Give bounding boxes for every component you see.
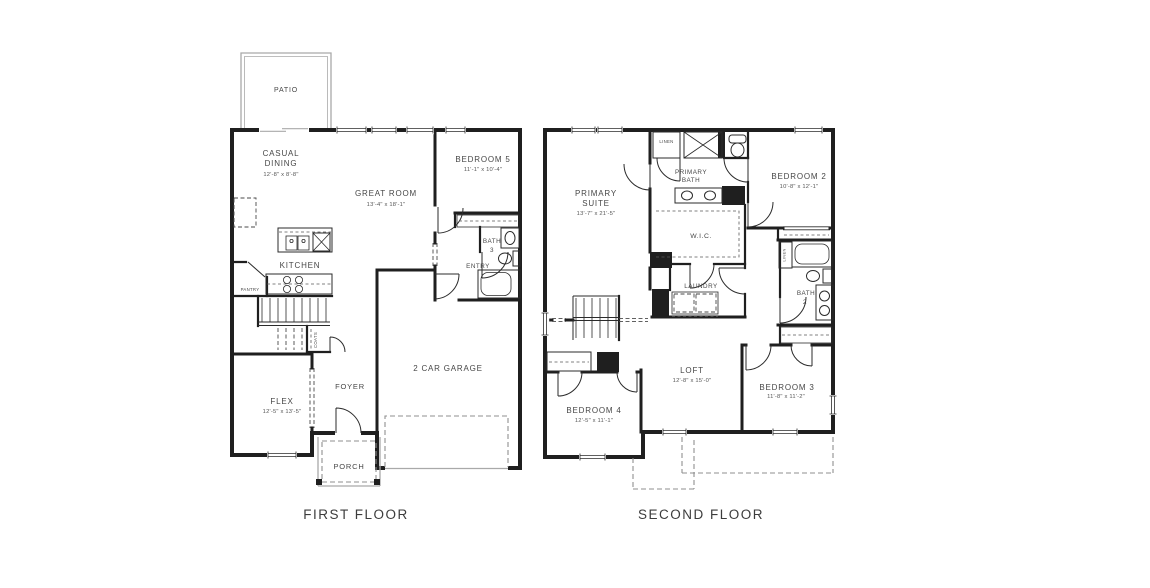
bath3-label-2: 3: [490, 247, 494, 254]
bath2-fixtures: [779, 241, 833, 320]
garage-label: 2 CAR GARAGE: [413, 364, 483, 373]
coats-closet-label: COATS: [313, 332, 318, 348]
bedroom5-dims: 11'-1" x 10'-4": [464, 167, 502, 173]
bath2-label-2: 2: [803, 299, 807, 306]
floor-plan-page: PATIO CASUAL DINING 12'-8" x 8'-8" GREAT…: [0, 0, 1150, 588]
floor-plan-canvas: PATIO CASUAL DINING 12'-8" x 8'-8" GREAT…: [0, 0, 1150, 588]
toilet-icon: [729, 135, 746, 143]
foyer-label: FOYER: [335, 382, 365, 391]
garage-apron: [385, 416, 508, 467]
linen2-label: LINEN: [782, 248, 787, 261]
entry-label: ENTRY: [466, 263, 490, 270]
primary-suite-label-1: PRIMARY: [575, 189, 617, 198]
flex-dims: 12'-5" x 13'-5": [263, 409, 302, 415]
porch-post: [374, 479, 380, 485]
primary-bath-label-1: PRIMARY: [675, 169, 707, 176]
double-vanity: [675, 188, 722, 203]
bath2-label-1: BATH: [797, 290, 815, 297]
bedroom5-label: BEDROOM 5: [455, 155, 510, 164]
laundry-appliances: [672, 292, 718, 317]
loft-label: LOFT: [680, 366, 704, 375]
porch-post: [316, 479, 322, 485]
casual-dining-label-1: CASUAL: [263, 149, 300, 158]
great-room-label: GREAT ROOM: [355, 189, 417, 198]
bath3-label-1: BATH: [483, 238, 501, 245]
bedroom5-closet: [457, 215, 519, 227]
pantry-label: PANTRY: [241, 287, 260, 292]
second-floor-closets: [547, 227, 832, 371]
kitchen-island: [278, 228, 332, 252]
bedroom3-dims: 11'-8" x 11'-2": [767, 394, 805, 400]
bedroom3-label: BEDROOM 3: [759, 383, 814, 392]
first-floor-stairs: [258, 298, 330, 350]
second-floor-stairs: [573, 296, 619, 340]
great-room-dims: 13'-4" x 18'-1": [367, 202, 406, 208]
bedroom4-dims: 12'-5" x 11'-1": [575, 418, 613, 424]
bedroom2-label: BEDROOM 2: [771, 172, 826, 181]
roof-outline-dashed: [633, 437, 833, 489]
linen-label: LINEN: [659, 139, 673, 144]
bedroom2-dims: 10'-8" x 12'-1": [780, 184, 819, 190]
wic-label: W.I.C.: [690, 233, 712, 240]
laundry-label: LAUNDRY: [684, 283, 718, 290]
first-floor-title: FIRST FLOOR: [303, 507, 409, 522]
casual-dining-label-2: DINING: [265, 159, 298, 168]
toilet-icon: [807, 271, 820, 282]
patio-label: PATIO: [274, 87, 298, 94]
kitchen-label: KITCHEN: [280, 261, 321, 270]
refrigerator-space: [234, 198, 256, 227]
casual-dining-dims: 12'-8" x 8'-8": [263, 172, 298, 178]
double-vanity: [816, 285, 833, 320]
bedroom4-label: BEDROOM 4: [566, 406, 621, 415]
primary-suite-label-2: SUITE: [582, 199, 610, 208]
first-floor-plan: PATIO CASUAL DINING 12'-8" x 8'-8" GREAT…: [232, 53, 520, 522]
flex-label: FLEX: [270, 397, 293, 406]
second-floor-title: SECOND FLOOR: [638, 507, 764, 522]
loft-dims: 12'-8" x 15'-0": [673, 378, 712, 384]
linen-closet: [653, 132, 680, 158]
primary-bath-label-2: BATH: [682, 177, 700, 184]
primary-suite-dims: 13'-7" x 21'-5": [577, 211, 616, 217]
kitchen-counter-range: [266, 274, 332, 294]
porch-label: PORCH: [333, 462, 364, 471]
second-floor-plan: PRIMARY SUITE 13'-7" x 21'-5" LINEN PRIM…: [541, 126, 837, 522]
bathtub-icon: [478, 270, 520, 298]
